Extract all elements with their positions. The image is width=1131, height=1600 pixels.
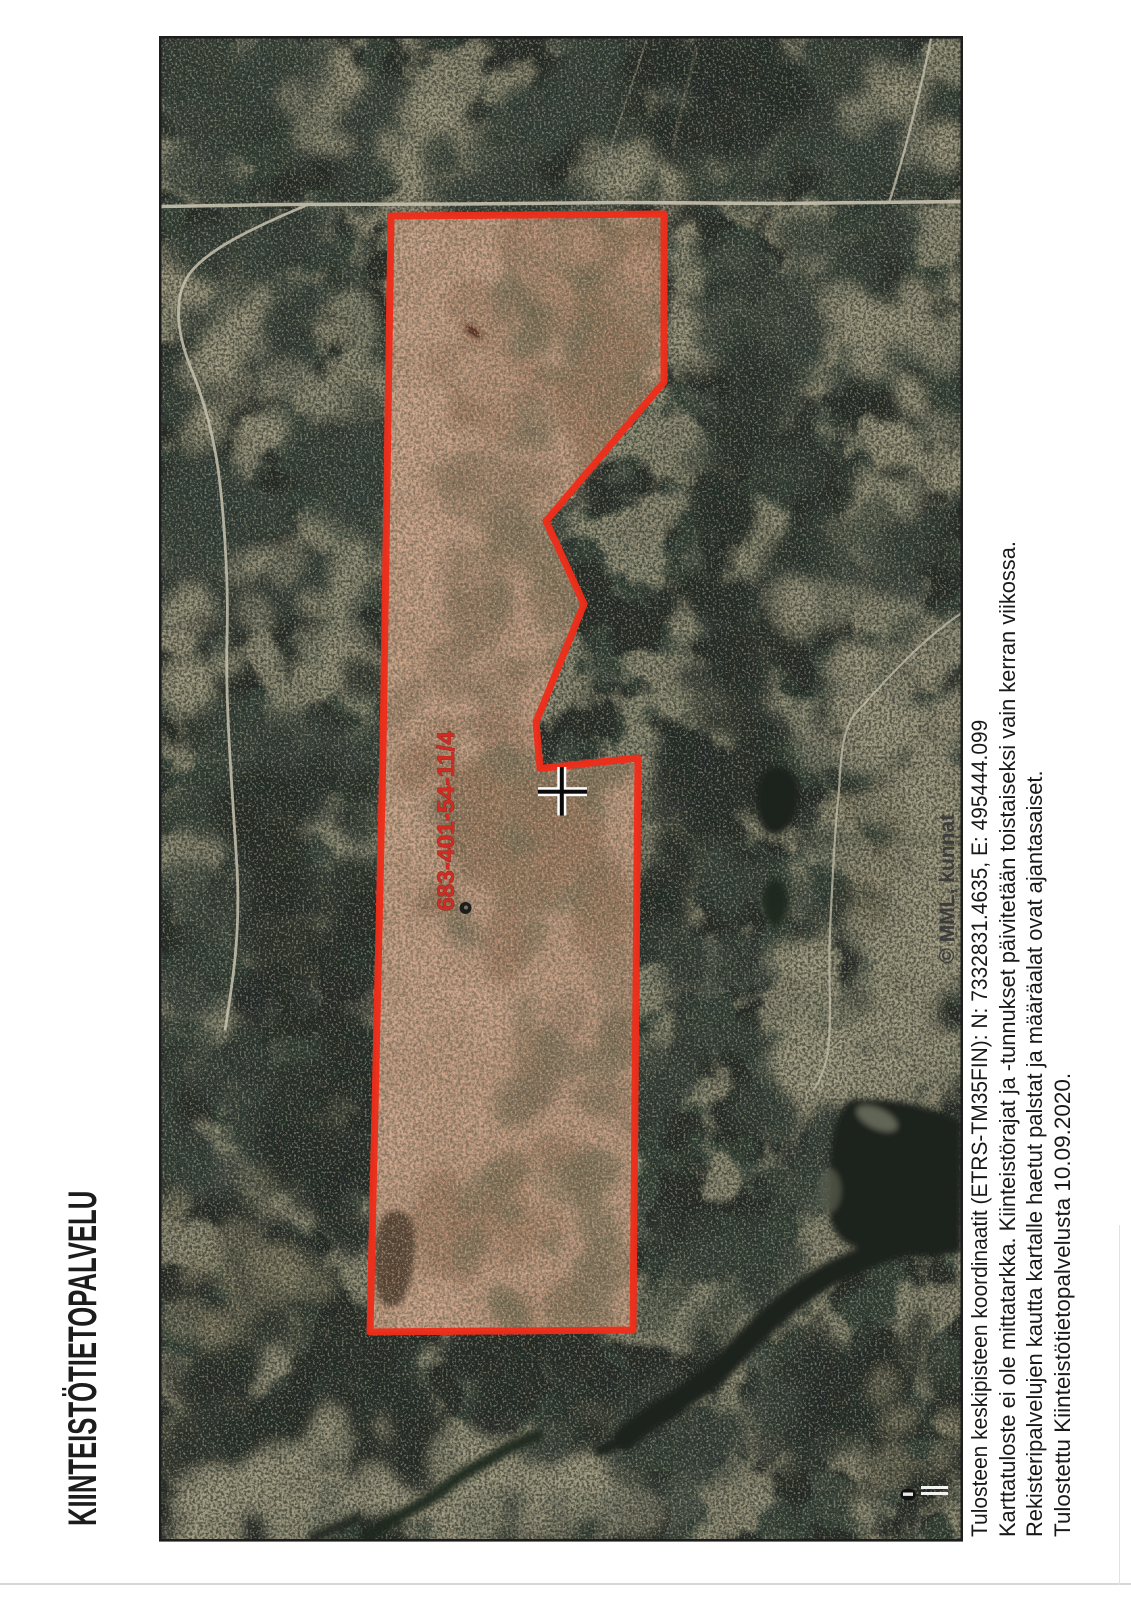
svg-text:683-401-54-11/4: 683-401-54-11/4 — [433, 731, 460, 911]
svg-text:© MML, kunnat: © MML, kunnat — [936, 814, 959, 964]
